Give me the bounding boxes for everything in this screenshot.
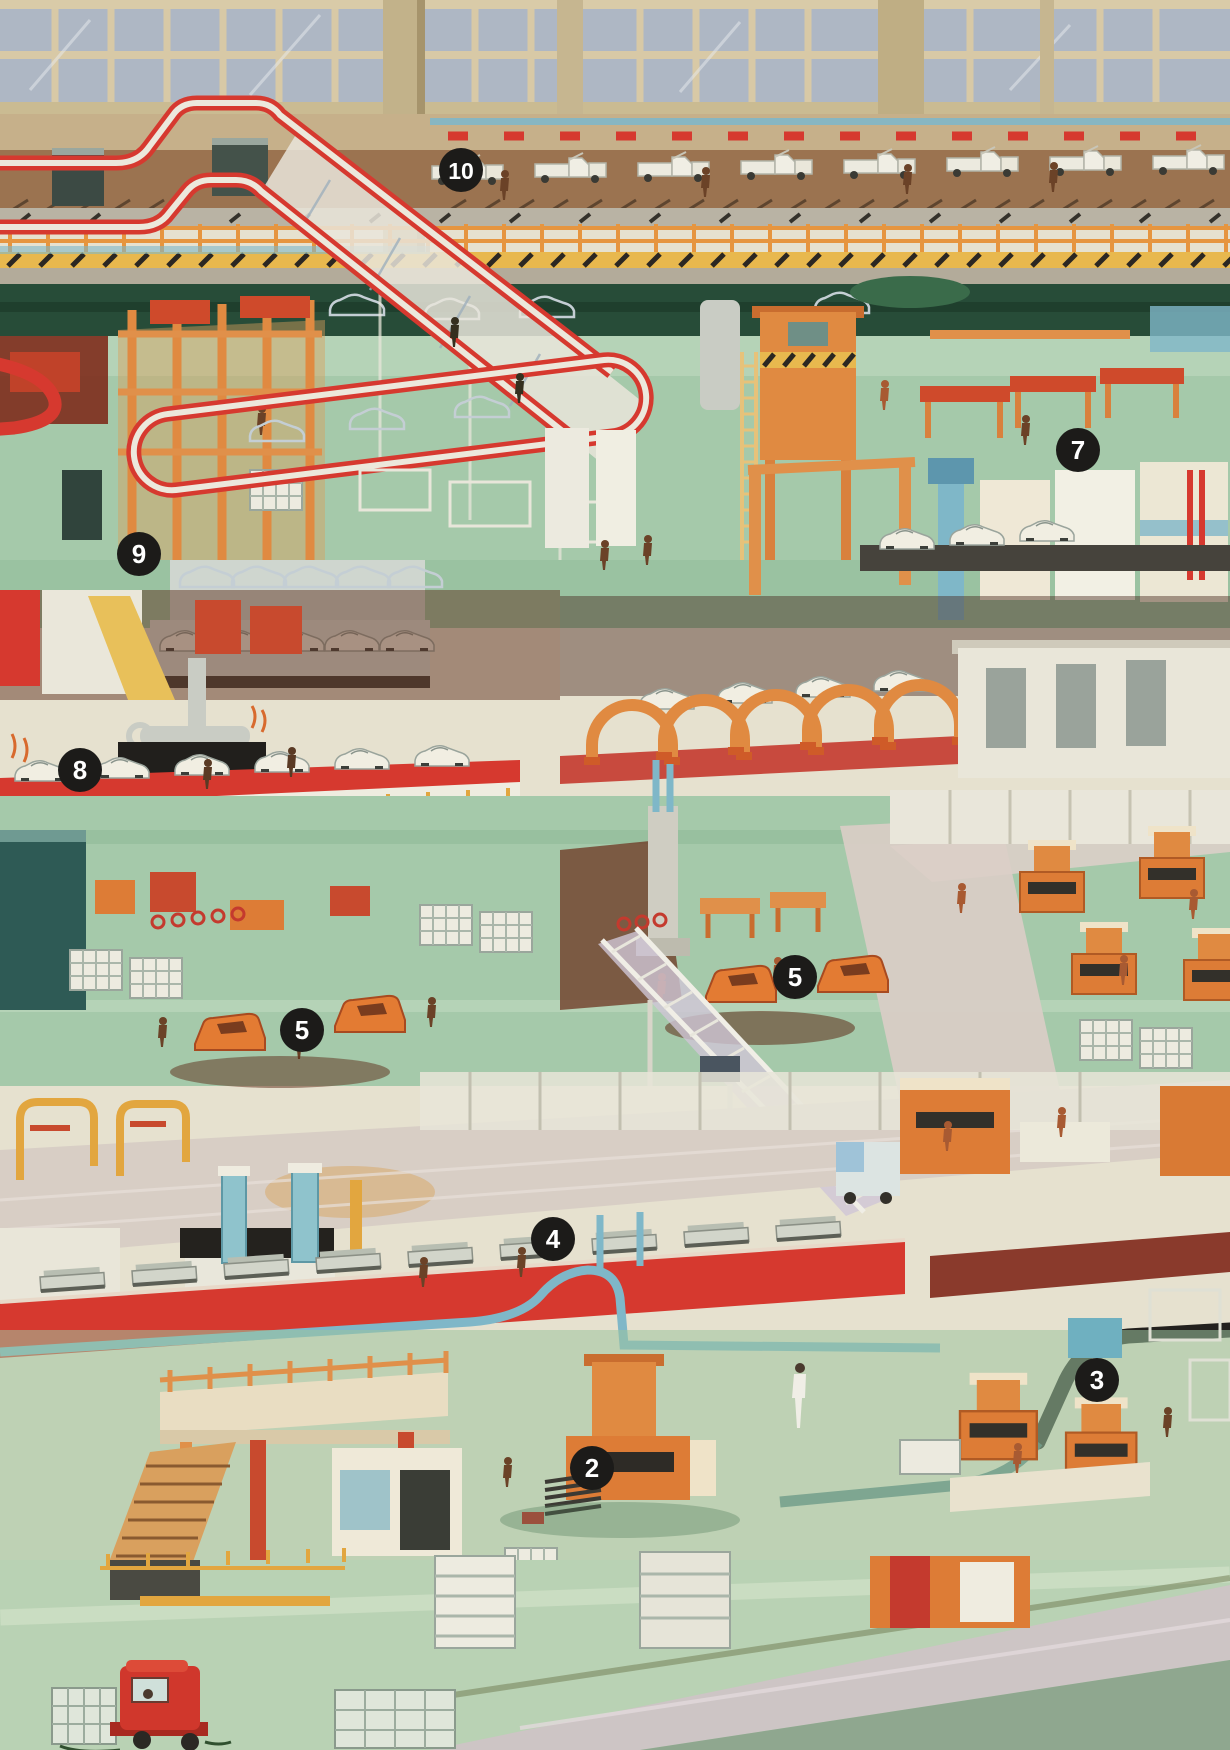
- red-machine: [195, 600, 241, 654]
- guard-rails: [0, 228, 1230, 241]
- deck-fascia: [0, 208, 1230, 226]
- red-column: [250, 1440, 266, 1562]
- column-cap: [218, 1166, 250, 1176]
- stage-marker-8: 8: [58, 748, 102, 792]
- stage-marker-7: 7: [1056, 428, 1100, 472]
- machine: [230, 900, 284, 930]
- stage-marker-10: 10: [439, 148, 483, 192]
- wall-pipe: [430, 118, 1230, 125]
- painted-body: [335, 749, 389, 769]
- marker-number: 5: [788, 962, 802, 992]
- crate: [480, 912, 532, 952]
- stage-marker-2: 2: [570, 1446, 614, 1490]
- floorpan-platform: [132, 1261, 197, 1287]
- press-side: [690, 1440, 716, 1496]
- floor-stain: [170, 1056, 390, 1088]
- painted-body: [415, 746, 469, 766]
- crate: [70, 950, 122, 990]
- factory-illustration-page: 1098755432: [0, 0, 1230, 1750]
- machine: [150, 872, 196, 912]
- stage-marker-4: 4: [531, 1217, 575, 1261]
- doorway: [62, 470, 102, 540]
- cabin-door: [1056, 664, 1096, 748]
- floorpan-platform: [224, 1254, 289, 1280]
- line-continuation: [930, 1232, 1230, 1298]
- marker-number: 4: [546, 1224, 561, 1254]
- red-machine: [250, 606, 302, 654]
- floorpan-platform: [408, 1242, 473, 1268]
- tug-wheel: [880, 1192, 892, 1204]
- truck-wheel: [133, 1731, 151, 1749]
- marker-number: 3: [1090, 1365, 1104, 1395]
- stage-marker-9: 9: [117, 532, 161, 576]
- machine-opening: [400, 1470, 450, 1550]
- press-cap: [900, 1078, 1010, 1092]
- factory-illustration: 1098755432: [0, 0, 1230, 1750]
- body-side-jig: [335, 996, 405, 1032]
- red-panel: [890, 1556, 930, 1628]
- orange-rail: [930, 330, 1130, 339]
- stage-marker-5: 5: [773, 955, 817, 999]
- cabin-roof: [212, 138, 268, 145]
- hazard-band: [0, 252, 1230, 268]
- body-side-jig: [818, 956, 888, 992]
- marker-number: 10: [448, 158, 474, 184]
- floor-shadow: [500, 1502, 740, 1538]
- teal-column: [292, 1172, 318, 1262]
- teal-box: [1068, 1318, 1122, 1358]
- slat-crate: [435, 1556, 515, 1648]
- crane-head: [928, 458, 974, 484]
- body-side-jig: [195, 1014, 265, 1050]
- roof-pillar: [878, 0, 924, 118]
- stage-marker-3: 3: [1075, 1358, 1119, 1402]
- final-line-deck: [0, 138, 1230, 286]
- cart: [900, 1440, 960, 1474]
- marker-number: 7: [1071, 435, 1085, 465]
- floorpan-platform: [684, 1222, 749, 1248]
- red-wall: [0, 590, 40, 686]
- driver-head: [143, 1689, 153, 1699]
- roof-pillar: [557, 0, 583, 118]
- roof-pillar: [1040, 0, 1054, 118]
- crate: [420, 905, 472, 945]
- scaffold-top: [150, 300, 210, 324]
- oven-cabins: [952, 640, 1230, 778]
- marker-number: 9: [132, 539, 146, 569]
- orange-base: [140, 1596, 330, 1606]
- cabinet-band: [1140, 520, 1228, 536]
- bench: [770, 892, 826, 908]
- screen-panel: [545, 428, 589, 548]
- slat-crate: [640, 1552, 730, 1648]
- crate: [1140, 1028, 1192, 1068]
- scaffold-top: [240, 296, 310, 318]
- supervisor-head: [795, 1363, 805, 1373]
- marker-number: 2: [585, 1453, 599, 1483]
- marker-number: 5: [295, 1015, 309, 1045]
- red-table: [920, 386, 1010, 402]
- cabin-door: [986, 668, 1026, 748]
- crate: [130, 958, 182, 998]
- greenery: [850, 276, 970, 308]
- booth-line: [560, 736, 960, 784]
- silo: [700, 300, 740, 410]
- red-table: [1010, 376, 1096, 392]
- red-table: [1100, 368, 1184, 384]
- screen-panel: [596, 430, 636, 546]
- tug-cab: [836, 1142, 864, 1172]
- machine-panel: [340, 1470, 390, 1530]
- machine: [330, 886, 370, 916]
- cabin-door: [1126, 660, 1166, 746]
- bench: [700, 898, 760, 914]
- floorpan-platform: [776, 1216, 841, 1242]
- deck-base: [0, 268, 1230, 286]
- marker-number: 8: [73, 755, 87, 785]
- floorpan-platform: [316, 1248, 381, 1274]
- press-slot: [916, 1112, 994, 1128]
- teal-column: [222, 1175, 246, 1263]
- tower-window: [788, 322, 828, 346]
- floorpan-platform: [40, 1267, 105, 1293]
- tug-wheel: [844, 1192, 856, 1204]
- stage-marker-5: 5: [280, 1008, 324, 1052]
- press-column: [592, 1362, 656, 1442]
- cab-roof: [126, 1660, 188, 1672]
- machine: [95, 880, 135, 914]
- foreground: [0, 1548, 1230, 1750]
- tank-top: [0, 830, 86, 842]
- cabin-roof: [52, 148, 104, 155]
- crate: [1080, 1020, 1132, 1060]
- body-side-jig: [706, 966, 776, 1002]
- press-body: [900, 1090, 1010, 1174]
- column-cap: [288, 1163, 322, 1173]
- white-panel: [960, 1562, 1014, 1622]
- press-body: [1160, 1086, 1230, 1176]
- teal-wall: [1150, 306, 1230, 352]
